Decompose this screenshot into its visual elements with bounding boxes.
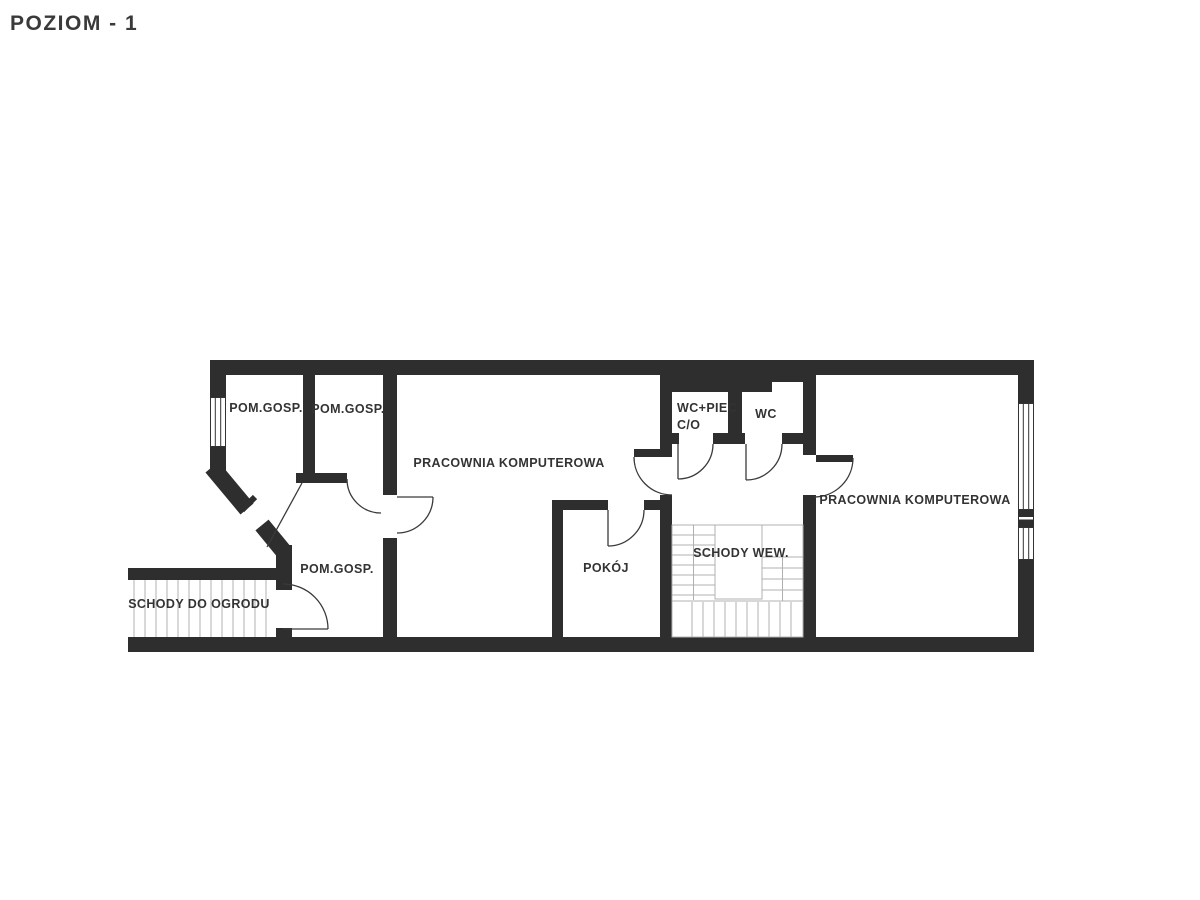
- door-arc-hall-west: [634, 457, 672, 495]
- wall-wc-south-2: [713, 433, 745, 444]
- room-label-wc-piec-line2: C/O: [677, 418, 700, 432]
- wall-right-upper: [1018, 360, 1034, 403]
- room-label-pokoj: POKÓJ: [583, 560, 629, 575]
- room-label-wc-piec-line1: WC+PIEC: [677, 401, 737, 415]
- wall-corridor-top: [128, 568, 277, 580]
- internal-stairs: [672, 525, 803, 637]
- door-arc-pracownia-right: [814, 458, 853, 497]
- window-left: [210, 397, 226, 447]
- wall-pracownia-west-upper: [383, 360, 397, 495]
- door-arc-pomgosp-2-3: [347, 479, 381, 513]
- wall-pokoj-north: [552, 500, 608, 510]
- window-right-upper: [1018, 403, 1034, 510]
- wall-wc-south-1: [660, 433, 679, 444]
- room-label-pom-gosp-3: POM.GOSP.: [300, 562, 374, 576]
- wall-pokoj-north-stub: [644, 500, 660, 510]
- floor-plan-svg: POM.GOSP. POM.GOSP. PRACOWNIA KOMPUTEROW…: [0, 0, 1200, 900]
- door-arc-pomgosp-pracownia: [397, 497, 433, 533]
- door-arc-pokoj: [608, 510, 644, 546]
- room-label-schody-ogrod: SCHODY DO OGRODU: [128, 597, 270, 611]
- door-arc-wc-piec: [678, 444, 713, 479]
- wall-left-upper: [210, 375, 226, 397]
- door-leaf-hall-west: [634, 449, 672, 457]
- wall-pomgosp-divider: [303, 375, 315, 473]
- door-leaf-pracownia-right: [816, 455, 853, 462]
- wall-pomgosp-stub: [296, 473, 347, 483]
- room-label-schody-wew: SCHODY WEW.: [693, 546, 789, 560]
- wall-diagonal-upper: [212, 467, 247, 509]
- wall-corridor-bar-stub: [276, 628, 292, 640]
- floor-plan-page: POZIOM - 1: [0, 0, 1200, 900]
- wall-hall-east-lower: [803, 495, 816, 638]
- wall-bottom: [128, 637, 1034, 652]
- room-label-pom-gosp-1: POM.GOSP.: [229, 401, 303, 415]
- door-arc-corridor: [283, 584, 328, 629]
- wall-pracownia-west-lower: [383, 538, 397, 638]
- wall-corridor-bar: [276, 545, 292, 590]
- wall-wc-mass-upper: [660, 360, 816, 382]
- room-label-pracownia-left: PRACOWNIA KOMPUTEROWA: [413, 456, 604, 470]
- door-arc-wc: [746, 444, 782, 480]
- wall-top: [210, 360, 1034, 375]
- room-label-pom-gosp-2: POM.GOSP.: [311, 402, 385, 416]
- wall-wc-mass-lower: [660, 382, 772, 392]
- door-arc-diagonal: [267, 483, 302, 547]
- wall-hall-east-upper: [803, 360, 816, 455]
- wall-hall-west-lower: [660, 495, 672, 638]
- room-label-pracownia-right: PRACOWNIA KOMPUTEROWA: [819, 493, 1010, 507]
- wall-right-lower: [1018, 560, 1034, 638]
- wall-pokoj-west: [552, 500, 563, 638]
- room-label-wc: WC: [755, 407, 777, 421]
